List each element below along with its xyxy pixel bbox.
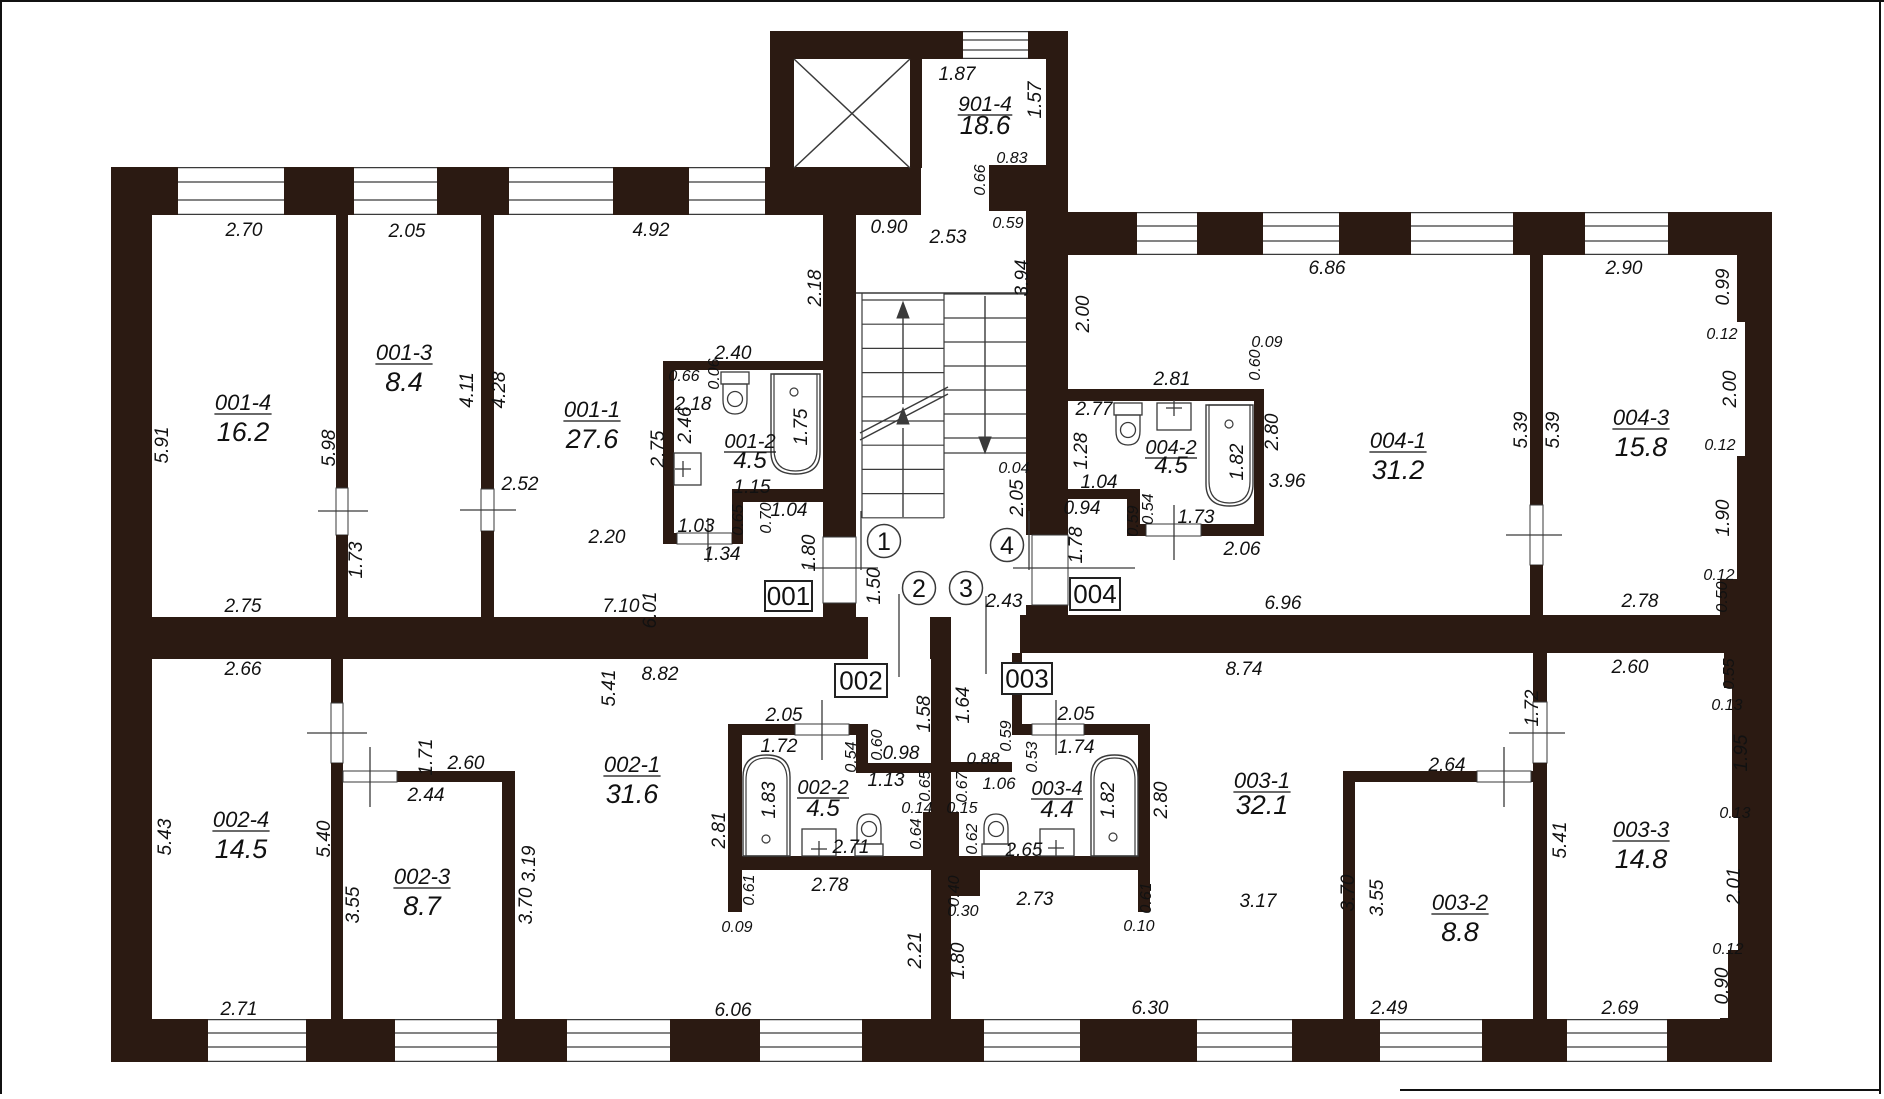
svg-text:2.80: 2.80 xyxy=(1262,413,1283,451)
svg-text:0.62: 0.62 xyxy=(964,823,981,854)
svg-text:004-3: 004-3 xyxy=(1613,405,1670,430)
svg-text:003-3: 003-3 xyxy=(1613,817,1670,842)
svg-text:0.65: 0.65 xyxy=(730,504,747,535)
svg-text:2.65: 2.65 xyxy=(1005,840,1043,861)
svg-text:1.06: 1.06 xyxy=(982,774,1016,793)
svg-text:1.72: 1.72 xyxy=(1522,689,1543,726)
svg-text:2.81: 2.81 xyxy=(1153,369,1191,390)
svg-text:5.43: 5.43 xyxy=(155,818,176,855)
svg-text:3: 3 xyxy=(959,575,973,603)
svg-text:1.04: 1.04 xyxy=(771,500,808,521)
svg-text:4: 4 xyxy=(1000,532,1014,560)
svg-text:0.54: 0.54 xyxy=(843,741,860,772)
svg-text:2.49: 2.49 xyxy=(1370,998,1408,1019)
svg-text:1.03: 1.03 xyxy=(678,516,715,537)
svg-text:1.04: 1.04 xyxy=(1081,472,1118,493)
svg-text:0.64: 0.64 xyxy=(908,818,925,849)
svg-text:2.75: 2.75 xyxy=(648,430,669,468)
svg-text:1.95: 1.95 xyxy=(1731,734,1752,771)
svg-text:2.75: 2.75 xyxy=(224,596,262,617)
svg-text:0.66: 0.66 xyxy=(972,164,989,195)
svg-text:8.74: 8.74 xyxy=(1226,659,1263,680)
svg-text:002-3: 002-3 xyxy=(394,864,451,889)
svg-text:2.20: 2.20 xyxy=(588,527,626,548)
svg-text:3.55: 3.55 xyxy=(1367,879,1388,916)
svg-text:2.70: 2.70 xyxy=(225,220,263,241)
svg-text:1: 1 xyxy=(877,528,891,556)
svg-text:0.04: 0.04 xyxy=(998,460,1029,477)
svg-text:3.19: 3.19 xyxy=(519,845,540,882)
svg-text:0.90: 0.90 xyxy=(1712,967,1733,1004)
svg-text:1.73: 1.73 xyxy=(346,541,367,578)
svg-text:2.00: 2.00 xyxy=(1720,370,1741,408)
svg-text:4.5: 4.5 xyxy=(1154,452,1188,479)
svg-text:0.13: 0.13 xyxy=(1711,697,1742,714)
svg-text:003-2: 003-2 xyxy=(1432,890,1488,915)
svg-text:32.1: 32.1 xyxy=(1236,790,1289,820)
svg-text:8.7: 8.7 xyxy=(403,891,442,921)
svg-text:1.58: 1.58 xyxy=(914,695,935,732)
svg-text:2.01: 2.01 xyxy=(1724,868,1745,906)
svg-text:0.10: 0.10 xyxy=(1123,918,1154,935)
svg-text:31.6: 31.6 xyxy=(606,779,660,809)
svg-text:4.28: 4.28 xyxy=(489,371,510,408)
svg-text:14.5: 14.5 xyxy=(215,834,269,864)
svg-text:0.90: 0.90 xyxy=(871,217,908,238)
svg-text:0.12: 0.12 xyxy=(1712,941,1743,958)
svg-text:2.78: 2.78 xyxy=(1621,591,1659,612)
svg-text:2.43: 2.43 xyxy=(985,591,1023,612)
svg-text:31.2: 31.2 xyxy=(1372,455,1425,485)
svg-text:2.52: 2.52 xyxy=(501,474,539,495)
svg-text:0.83: 0.83 xyxy=(996,150,1027,167)
svg-text:0.12: 0.12 xyxy=(1704,437,1735,454)
svg-text:5.40: 5.40 xyxy=(314,820,335,857)
svg-text:2.90: 2.90 xyxy=(1605,258,1643,279)
svg-text:6.06: 6.06 xyxy=(715,1000,752,1021)
svg-text:2.78: 2.78 xyxy=(811,875,849,896)
svg-text:0.59: 0.59 xyxy=(998,720,1015,751)
svg-text:0.09: 0.09 xyxy=(721,919,752,936)
svg-text:004-1: 004-1 xyxy=(1370,428,1426,453)
svg-text:6.86: 6.86 xyxy=(1309,258,1346,279)
svg-text:0.88: 0.88 xyxy=(966,749,1000,768)
svg-text:4.5: 4.5 xyxy=(733,447,767,474)
svg-text:1.90: 1.90 xyxy=(1713,499,1734,536)
svg-text:002-4: 002-4 xyxy=(213,807,269,832)
svg-text:2.18: 2.18 xyxy=(805,269,826,307)
svg-text:1.82: 1.82 xyxy=(1098,781,1119,818)
svg-text:001-1: 001-1 xyxy=(564,397,620,422)
svg-text:2.69: 2.69 xyxy=(1601,998,1639,1019)
svg-text:0.53: 0.53 xyxy=(1024,741,1041,772)
svg-text:1.78: 1.78 xyxy=(1066,526,1087,563)
svg-text:0.65: 0.65 xyxy=(917,770,934,801)
svg-text:002: 002 xyxy=(839,666,882,696)
svg-text:4.5: 4.5 xyxy=(806,795,840,822)
svg-text:0.70: 0.70 xyxy=(758,502,775,533)
svg-text:2.53: 2.53 xyxy=(929,227,967,248)
svg-text:2.05: 2.05 xyxy=(765,705,803,726)
svg-text:2.73: 2.73 xyxy=(1016,889,1054,910)
svg-text:2.05: 2.05 xyxy=(1007,479,1028,517)
svg-text:1.15: 1.15 xyxy=(734,477,771,498)
svg-text:1.83: 1.83 xyxy=(759,781,780,818)
svg-text:8.82: 8.82 xyxy=(642,664,679,685)
svg-text:1.13: 1.13 xyxy=(868,770,905,791)
svg-text:27.6: 27.6 xyxy=(565,424,620,454)
svg-text:4.4: 4.4 xyxy=(1040,796,1073,823)
svg-text:003: 003 xyxy=(1005,664,1048,694)
svg-text:001-3: 001-3 xyxy=(376,340,433,365)
svg-text:1.75: 1.75 xyxy=(791,408,812,445)
svg-text:1.74: 1.74 xyxy=(1058,737,1095,758)
svg-text:5.41: 5.41 xyxy=(599,670,620,707)
svg-text:16.2: 16.2 xyxy=(217,417,270,447)
svg-text:0.60: 0.60 xyxy=(869,729,886,760)
svg-text:0.55: 0.55 xyxy=(1721,658,1738,689)
svg-text:2.21: 2.21 xyxy=(905,932,926,970)
svg-text:3.55: 3.55 xyxy=(343,886,364,923)
svg-text:15.8: 15.8 xyxy=(1615,432,1668,462)
svg-text:3.70: 3.70 xyxy=(516,887,537,924)
svg-text:1.80: 1.80 xyxy=(948,942,969,979)
svg-text:2.06: 2.06 xyxy=(1223,539,1261,560)
svg-text:8.4: 8.4 xyxy=(385,367,423,397)
svg-text:0.61: 0.61 xyxy=(741,874,758,905)
svg-text:0.61: 0.61 xyxy=(1138,882,1155,913)
svg-text:0.98: 0.98 xyxy=(883,743,920,764)
svg-text:2.60: 2.60 xyxy=(1611,657,1649,678)
svg-text:001-4: 001-4 xyxy=(215,390,271,415)
svg-text:1.64: 1.64 xyxy=(953,687,974,724)
svg-text:2.46: 2.46 xyxy=(675,406,696,444)
svg-text:6.96: 6.96 xyxy=(1265,593,1302,614)
svg-text:2.80: 2.80 xyxy=(1151,781,1172,819)
svg-text:0.54: 0.54 xyxy=(1140,493,1157,524)
svg-text:0.67: 0.67 xyxy=(954,770,971,802)
svg-text:2.81: 2.81 xyxy=(709,812,730,850)
svg-text:5.39: 5.39 xyxy=(1543,411,1564,448)
svg-text:18.6: 18.6 xyxy=(960,110,1011,140)
svg-text:6.01: 6.01 xyxy=(640,592,661,629)
svg-text:0.99: 0.99 xyxy=(1713,268,1734,305)
svg-text:2.05: 2.05 xyxy=(388,221,426,242)
svg-text:5.41: 5.41 xyxy=(1550,822,1571,859)
svg-text:1.28: 1.28 xyxy=(1071,432,1092,469)
svg-text:1.82: 1.82 xyxy=(1227,443,1248,480)
svg-text:2.60: 2.60 xyxy=(447,753,485,774)
svg-text:2.77: 2.77 xyxy=(1075,399,1114,420)
svg-text:7.10: 7.10 xyxy=(603,596,640,617)
svg-text:5.91: 5.91 xyxy=(152,427,173,464)
svg-text:4.11: 4.11 xyxy=(457,372,478,408)
svg-text:1.57: 1.57 xyxy=(1025,80,1046,118)
svg-text:4.92: 4.92 xyxy=(633,220,670,241)
svg-text:0.09: 0.09 xyxy=(1251,334,1282,351)
svg-text:6.30: 6.30 xyxy=(1132,998,1169,1019)
svg-text:2.44: 2.44 xyxy=(407,785,445,806)
svg-text:2.05: 2.05 xyxy=(1057,704,1095,725)
svg-text:2.66: 2.66 xyxy=(224,659,262,680)
svg-text:001: 001 xyxy=(767,581,810,611)
svg-text:3.17: 3.17 xyxy=(1240,891,1278,912)
svg-text:1.80: 1.80 xyxy=(799,534,820,571)
svg-text:1.87: 1.87 xyxy=(939,64,977,85)
svg-text:1.73: 1.73 xyxy=(1178,507,1215,528)
svg-text:2.64: 2.64 xyxy=(1428,755,1466,776)
svg-text:3.70: 3.70 xyxy=(1338,874,1359,911)
svg-text:0.59: 0.59 xyxy=(992,215,1023,232)
svg-text:2.00: 2.00 xyxy=(1073,295,1094,333)
svg-text:0.59: 0.59 xyxy=(1125,505,1142,536)
svg-text:0.66: 0.66 xyxy=(668,368,699,385)
svg-text:2.71: 2.71 xyxy=(220,999,258,1020)
svg-text:0.06: 0.06 xyxy=(706,358,723,389)
svg-text:0.94: 0.94 xyxy=(1064,498,1101,519)
svg-text:14.8: 14.8 xyxy=(1615,844,1668,874)
svg-text:1.50: 1.50 xyxy=(864,567,885,604)
svg-text:1.71: 1.71 xyxy=(416,739,437,776)
svg-text:5.39: 5.39 xyxy=(1511,411,1532,448)
svg-text:002-1: 002-1 xyxy=(604,752,660,777)
svg-text:0.50: 0.50 xyxy=(1714,581,1731,612)
svg-text:1.34: 1.34 xyxy=(704,544,741,565)
svg-text:2.71: 2.71 xyxy=(832,837,870,858)
svg-text:1.72: 1.72 xyxy=(761,736,798,757)
svg-text:3.96: 3.96 xyxy=(1269,471,1306,492)
svg-text:5.98: 5.98 xyxy=(319,429,340,466)
svg-text:004: 004 xyxy=(1073,579,1116,609)
svg-text:0.13: 0.13 xyxy=(1719,805,1750,822)
svg-text:3.94: 3.94 xyxy=(1012,260,1033,297)
svg-text:0.60: 0.60 xyxy=(1247,349,1264,380)
svg-text:0.12: 0.12 xyxy=(1706,326,1737,343)
svg-text:0.40: 0.40 xyxy=(946,875,963,906)
svg-text:8.8: 8.8 xyxy=(1441,917,1479,947)
svg-text:2: 2 xyxy=(912,575,926,603)
